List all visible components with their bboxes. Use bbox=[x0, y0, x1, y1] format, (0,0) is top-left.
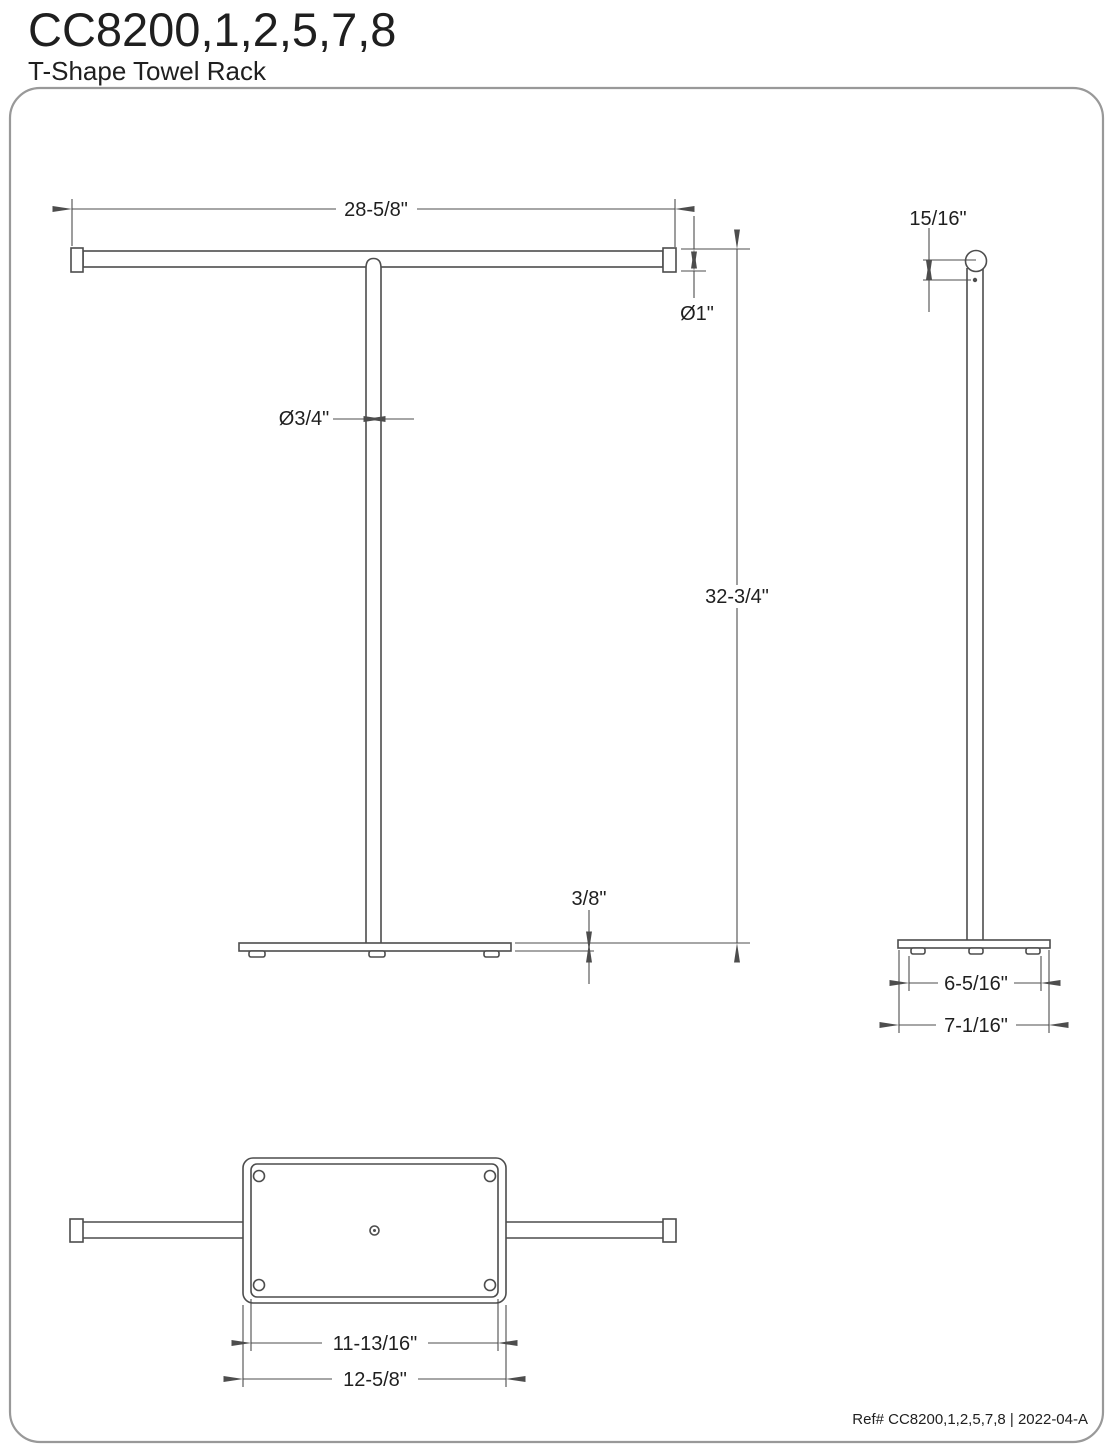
dim-bar-diameter-label: Ø1" bbox=[680, 303, 714, 325]
dim-feet-spacing: 6-5/16" bbox=[909, 956, 1041, 995]
drawing-page: CC8200,1,2,5,7,8 T-Shape Towel Rack 28-5… bbox=[0, 0, 1113, 1450]
page-subtitle: T-Shape Towel Rack bbox=[28, 56, 267, 86]
bar-end-cap-left bbox=[71, 248, 83, 272]
technical-drawing: CC8200,1,2,5,7,8 T-Shape Towel Rack 28-5… bbox=[0, 0, 1113, 1450]
dim-feet-spacing-label: 6-5/16" bbox=[944, 973, 1008, 995]
bottom-view: 11-13/16" 12-5/8" bbox=[70, 1158, 676, 1391]
dim-pole-diameter: Ø3/4" bbox=[279, 408, 414, 430]
dim-mount-plate-width: 11-13/16" bbox=[251, 1299, 498, 1355]
reference-number: Ref# CC8200,1,2,5,7,8 | 2022-04-A bbox=[852, 1411, 1088, 1428]
dim-mount-plate-width-label: 11-13/16" bbox=[333, 1333, 418, 1355]
dim-bar-diameter: Ø1" bbox=[680, 216, 750, 325]
base-plate bbox=[239, 943, 511, 951]
dim-pole-diameter-label: Ø3/4" bbox=[279, 408, 329, 430]
bar-end-cap-right bbox=[663, 1219, 676, 1242]
set-screw-dot bbox=[973, 278, 977, 282]
sheet-border bbox=[10, 88, 1103, 1442]
foot bbox=[911, 948, 925, 954]
page-title: CC8200,1,2,5,7,8 bbox=[28, 3, 396, 56]
center-mark-dot bbox=[373, 1229, 376, 1232]
dim-base-width-label: 12-5/8" bbox=[343, 1369, 407, 1391]
dim-base-depth-label: 7-1/16" bbox=[944, 1015, 1008, 1037]
front-view: 28-5/8" Ø1" Ø3/4" 32-3/4" bbox=[71, 199, 769, 984]
bar-end-cap-left bbox=[70, 1219, 83, 1242]
side-view: 15/16" 6-5/16" 7-1/16" bbox=[898, 208, 1050, 1037]
bar-end-circle bbox=[966, 251, 987, 272]
dim-bar-length: 28-5/8" bbox=[72, 199, 675, 247]
foot bbox=[249, 951, 265, 957]
dim-bar-top-offset-label: 15/16" bbox=[909, 208, 966, 230]
dim-base-thickness: 3/8" bbox=[515, 888, 750, 984]
dim-bar-length-label: 28-5/8" bbox=[344, 199, 408, 221]
pole bbox=[366, 259, 381, 944]
bar-end-cap-right bbox=[663, 248, 676, 272]
foot bbox=[369, 951, 385, 957]
base-plate-side bbox=[898, 940, 1050, 948]
header: CC8200,1,2,5,7,8 T-Shape Towel Rack bbox=[28, 3, 396, 86]
foot bbox=[969, 948, 983, 954]
foot bbox=[1026, 948, 1040, 954]
dim-base-thickness-label: 3/8" bbox=[572, 888, 607, 910]
dim-overall-height-label: 32-3/4" bbox=[705, 586, 769, 608]
dim-overall-height: 32-3/4" bbox=[705, 249, 769, 943]
foot bbox=[484, 951, 499, 957]
